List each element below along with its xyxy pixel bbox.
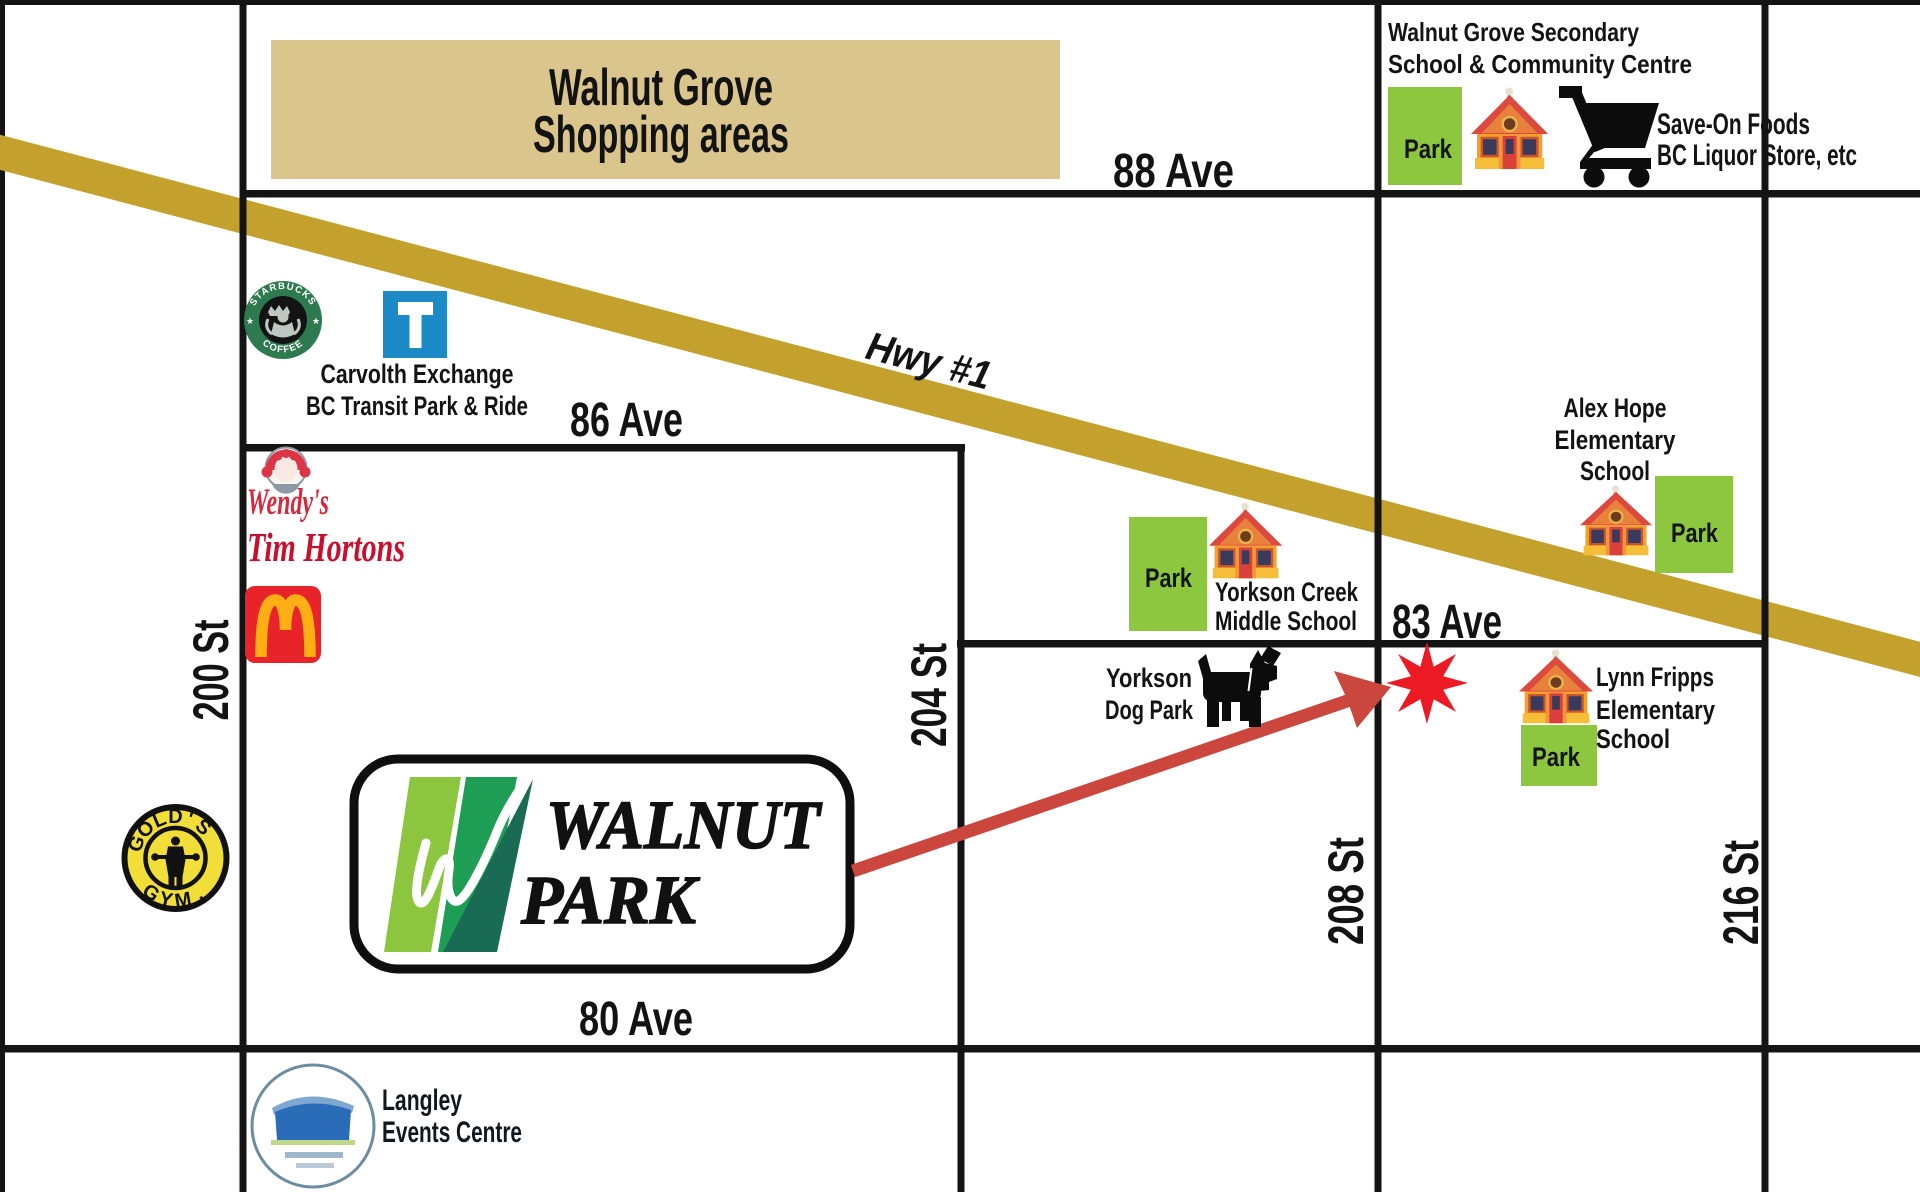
svg-text:School: School bbox=[1596, 724, 1670, 754]
svg-text:WALNUT: WALNUT bbox=[546, 787, 823, 863]
svg-text:BC Transit Park & Ride: BC Transit Park & Ride bbox=[306, 391, 528, 421]
svg-text:D: D bbox=[168, 806, 182, 828]
svg-text:School & Community Centre: School & Community Centre bbox=[1388, 49, 1692, 79]
svg-text:Alex Hope: Alex Hope bbox=[1564, 393, 1667, 423]
svg-text:Yorkson Creek: Yorkson Creek bbox=[1215, 577, 1359, 607]
svg-text:Park: Park bbox=[1671, 518, 1719, 548]
svg-text:Events Centre: Events Centre bbox=[382, 1116, 522, 1149]
svg-text:Park: Park bbox=[1404, 134, 1453, 164]
svg-text:Langley: Langley bbox=[382, 1084, 462, 1117]
svg-text:216 St: 216 St bbox=[1713, 840, 1769, 945]
svg-text:Yorkson: Yorkson bbox=[1106, 663, 1192, 693]
svg-text:Tim Hortons: Tim Hortons bbox=[247, 524, 405, 570]
svg-text:204 St: 204 St bbox=[901, 643, 957, 747]
svg-text:Dog Park: Dog Park bbox=[1105, 695, 1194, 725]
svg-text:88 Ave: 88 Ave bbox=[1113, 145, 1234, 198]
svg-text:208 St: 208 St bbox=[1318, 837, 1374, 945]
svg-text:Shopping areas: Shopping areas bbox=[533, 106, 789, 164]
svg-text:80 Ave: 80 Ave bbox=[579, 993, 693, 1046]
svg-text:Park: Park bbox=[1532, 742, 1581, 772]
svg-text:Wendy's: Wendy's bbox=[247, 482, 329, 523]
svg-text:PARK: PARK bbox=[520, 862, 700, 938]
svg-text:★: ★ bbox=[312, 316, 320, 326]
svg-text:★: ★ bbox=[246, 316, 254, 326]
svg-text:Elementary: Elementary bbox=[1555, 425, 1676, 455]
svg-text:83 Ave: 83 Ave bbox=[1392, 596, 1502, 649]
svg-text:Walnut Grove Secondary: Walnut Grove Secondary bbox=[1388, 17, 1639, 47]
svg-text:Save-On Foods: Save-On Foods bbox=[1657, 108, 1810, 141]
svg-text:200 St: 200 St bbox=[183, 619, 239, 720]
svg-text:Park: Park bbox=[1145, 563, 1193, 593]
svg-text:Carvolth Exchange: Carvolth Exchange bbox=[321, 359, 514, 389]
svg-text:86 Ave: 86 Ave bbox=[570, 394, 683, 447]
svg-text:Middle School: Middle School bbox=[1215, 606, 1357, 636]
svg-text:School: School bbox=[1580, 456, 1650, 486]
svg-text:Elementary: Elementary bbox=[1596, 695, 1715, 725]
svg-text:Lynn Fripps: Lynn Fripps bbox=[1596, 662, 1714, 692]
svg-text:BC Liquor Store, etc: BC Liquor Store, etc bbox=[1657, 139, 1857, 172]
